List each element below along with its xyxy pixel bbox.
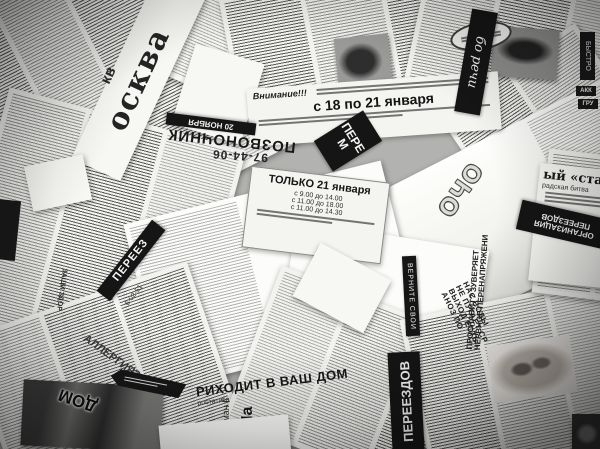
car-photo [572, 414, 600, 449]
dark-object-photo [334, 33, 393, 84]
moving-vertical-text: ПЕРЕЕЗДОВ [397, 360, 414, 442]
moving-vertical-banner: ПЕРЕЕЗДОВ [387, 351, 424, 449]
pere-m-text: М [335, 137, 350, 152]
bystro-text: БЫСТРО [584, 41, 591, 71]
akk-chip: АКК [576, 86, 596, 96]
vernite-text: ВЕРНИТЕ СВОИ [406, 262, 416, 329]
bystro-chip: БЫСТРО [580, 32, 595, 80]
phone-number: 97-44-06 [212, 148, 269, 164]
newspaper-collage-photo: осква кв Внимание!!! с 18 по 21 января 2… [0, 0, 600, 449]
face-sketch-photo [486, 334, 577, 403]
rechi-text: бо речи [465, 35, 487, 89]
gru-chip: ГРУ [578, 99, 598, 109]
